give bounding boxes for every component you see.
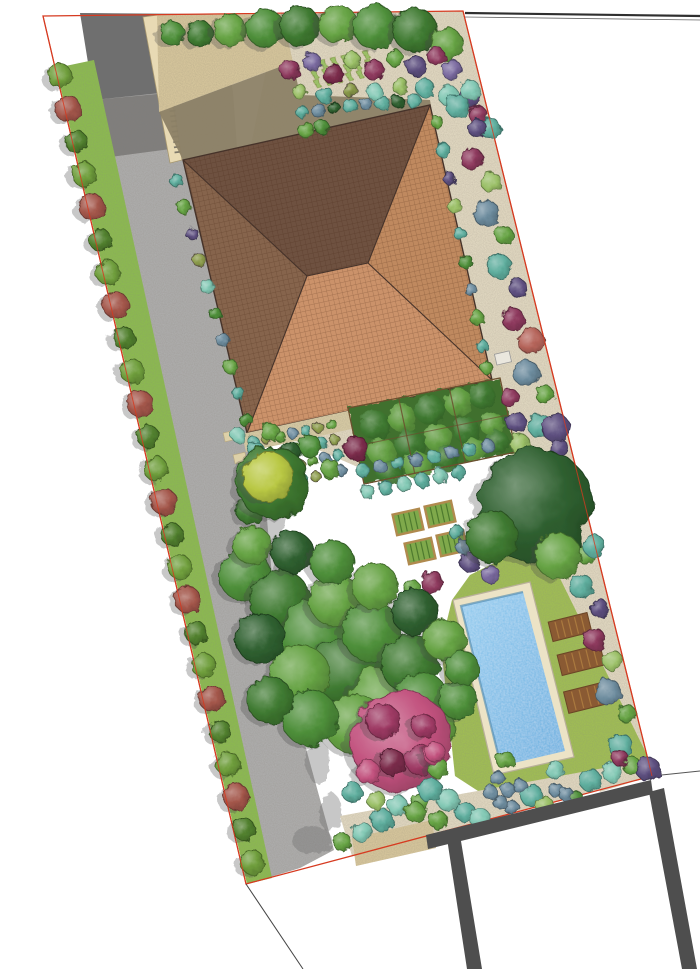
- garden-plan-canvas: [0, 0, 700, 969]
- fence-line-top-a: [465, 13, 700, 16]
- garden-plan: [0, 0, 700, 969]
- fence-line-top-b: [465, 17, 700, 20]
- tip-line-bottom: [246, 884, 303, 969]
